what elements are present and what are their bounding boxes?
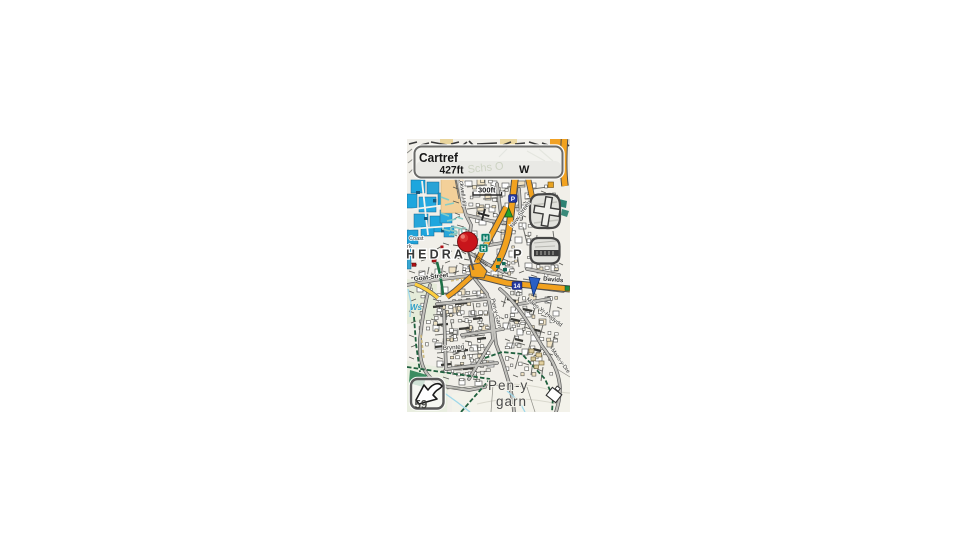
svg-text:HEDRA: HEDRA [407,248,466,262]
svg-text:14: 14 [514,284,521,290]
svg-text:Cartref: Cartref [419,150,459,165]
svg-text:59: 59 [415,400,428,412]
svg-text:Pen-y: Pen-y [488,378,528,393]
svg-text:Ws: Ws [410,303,423,312]
svg-text:H: H [481,246,486,253]
svg-text:H: H [483,235,488,242]
svg-text:rk: rk [407,244,412,250]
svg-text:P: P [511,196,516,203]
svg-text:P: P [513,247,522,262]
svg-text:W: W [519,164,530,176]
svg-text:300ft: 300ft [478,186,496,195]
svg-text:garn: garn [496,394,527,409]
svg-text:427ft: 427ft [440,165,464,177]
svg-text:Coast: Coast [409,236,424,242]
